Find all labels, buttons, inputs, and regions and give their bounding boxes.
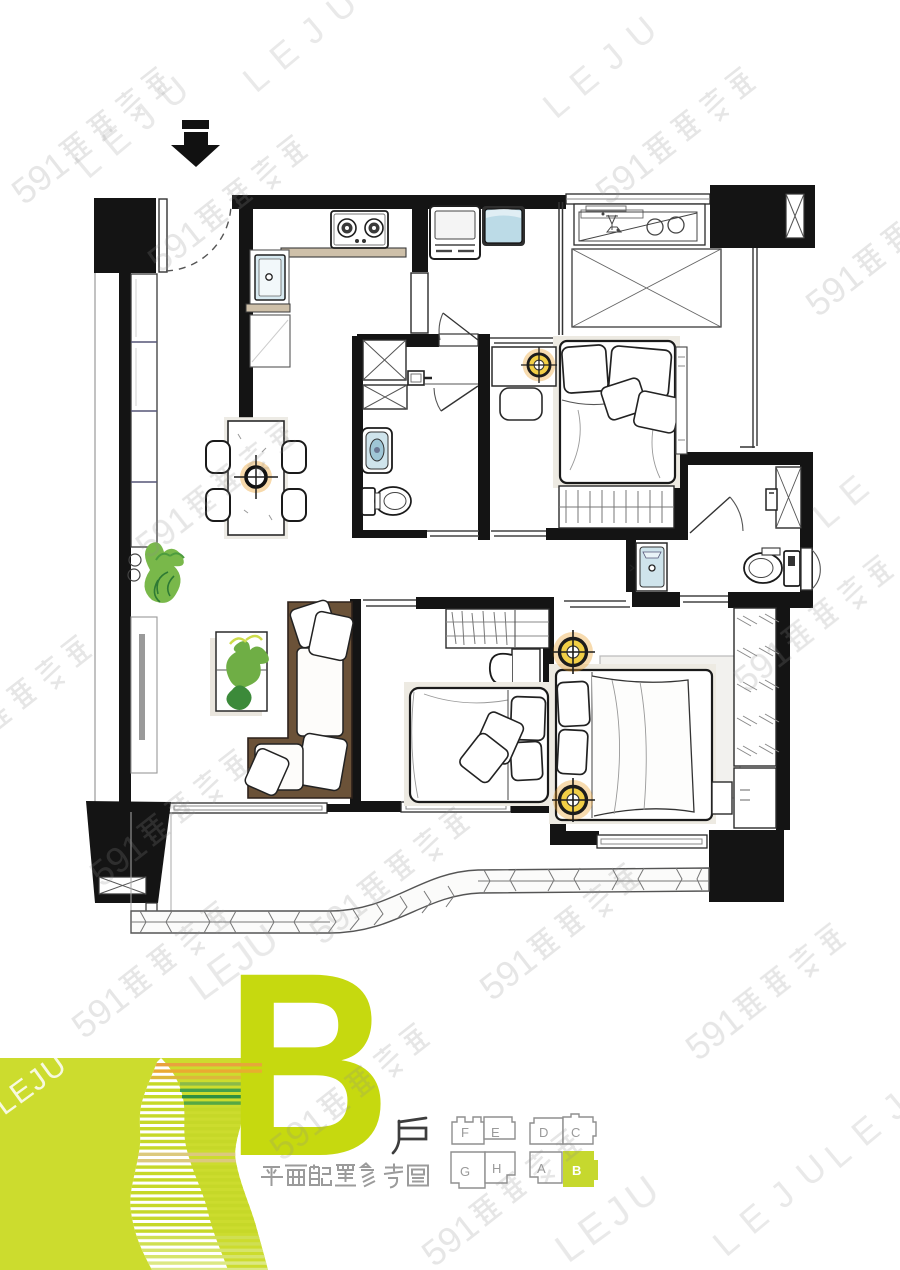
svg-text:C: C [571, 1125, 580, 1140]
svg-text:D: D [539, 1125, 548, 1140]
svg-text:B: B [572, 1163, 581, 1178]
svg-text:H: H [492, 1161, 501, 1176]
svg-text:E: E [491, 1125, 500, 1140]
svg-text:G: G [460, 1164, 470, 1179]
svg-text:F: F [461, 1125, 469, 1140]
